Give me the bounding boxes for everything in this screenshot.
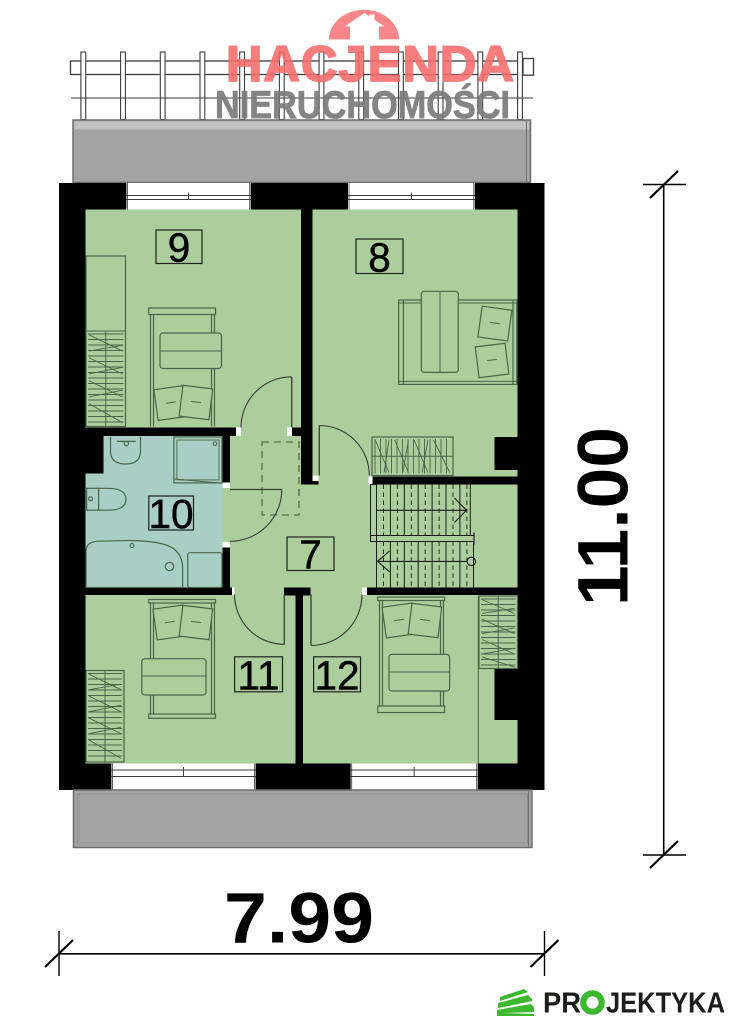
svg-text:10: 10 [148, 491, 193, 537]
svg-text:8: 8 [368, 234, 391, 280]
svg-text:JEKTYKA: JEKTYKA [606, 988, 725, 1020]
svg-text:11.00: 11.00 [565, 427, 644, 606]
svg-text:7.99: 7.99 [224, 880, 374, 959]
svg-text:7: 7 [299, 531, 322, 577]
svg-text:11: 11 [237, 653, 279, 699]
svg-text:12: 12 [314, 653, 359, 699]
svg-text:NIERUCHOMOŚCI: NIERUCHOMOŚCI [215, 83, 510, 127]
svg-text:9: 9 [168, 224, 191, 270]
svg-text:PR: PR [543, 988, 581, 1020]
